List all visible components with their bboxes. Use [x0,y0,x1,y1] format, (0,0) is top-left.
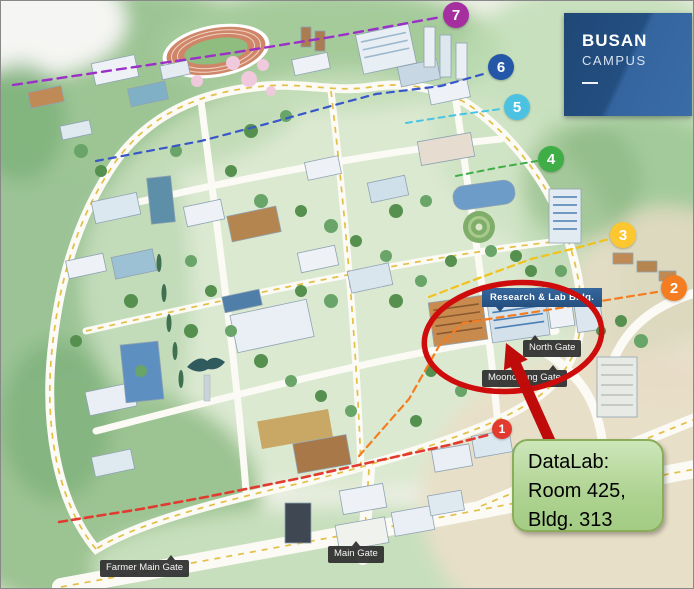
datalab-callout: DataLab: Room 425, Bldg. 313 [512,439,664,532]
badge-dash [582,82,598,84]
badge-subtitle: CAMPUS [582,53,692,68]
north-gate-label: North Gate [523,340,581,357]
farmer-main-gate-label: Farmer Main Gate [100,560,189,577]
campus-map-slide: North Gate Moonchang Gate Main Gate Farm… [0,0,694,589]
busan-campus-badge: BUSAN CAMPUS [564,13,692,116]
circular-garden [463,211,495,243]
moonchang-gate-label: Moonchang Gate [482,370,567,387]
badge-title: BUSAN [582,31,692,51]
callout-line-2: Room 425, [528,477,662,506]
callout-line-3: Bldg. 313 [528,506,662,535]
callout-line-1: DataLab: [528,448,662,477]
main-gate-label: Main Gate [328,546,384,563]
research-lab-building-label: Research & Lab Bldg. [482,288,602,307]
